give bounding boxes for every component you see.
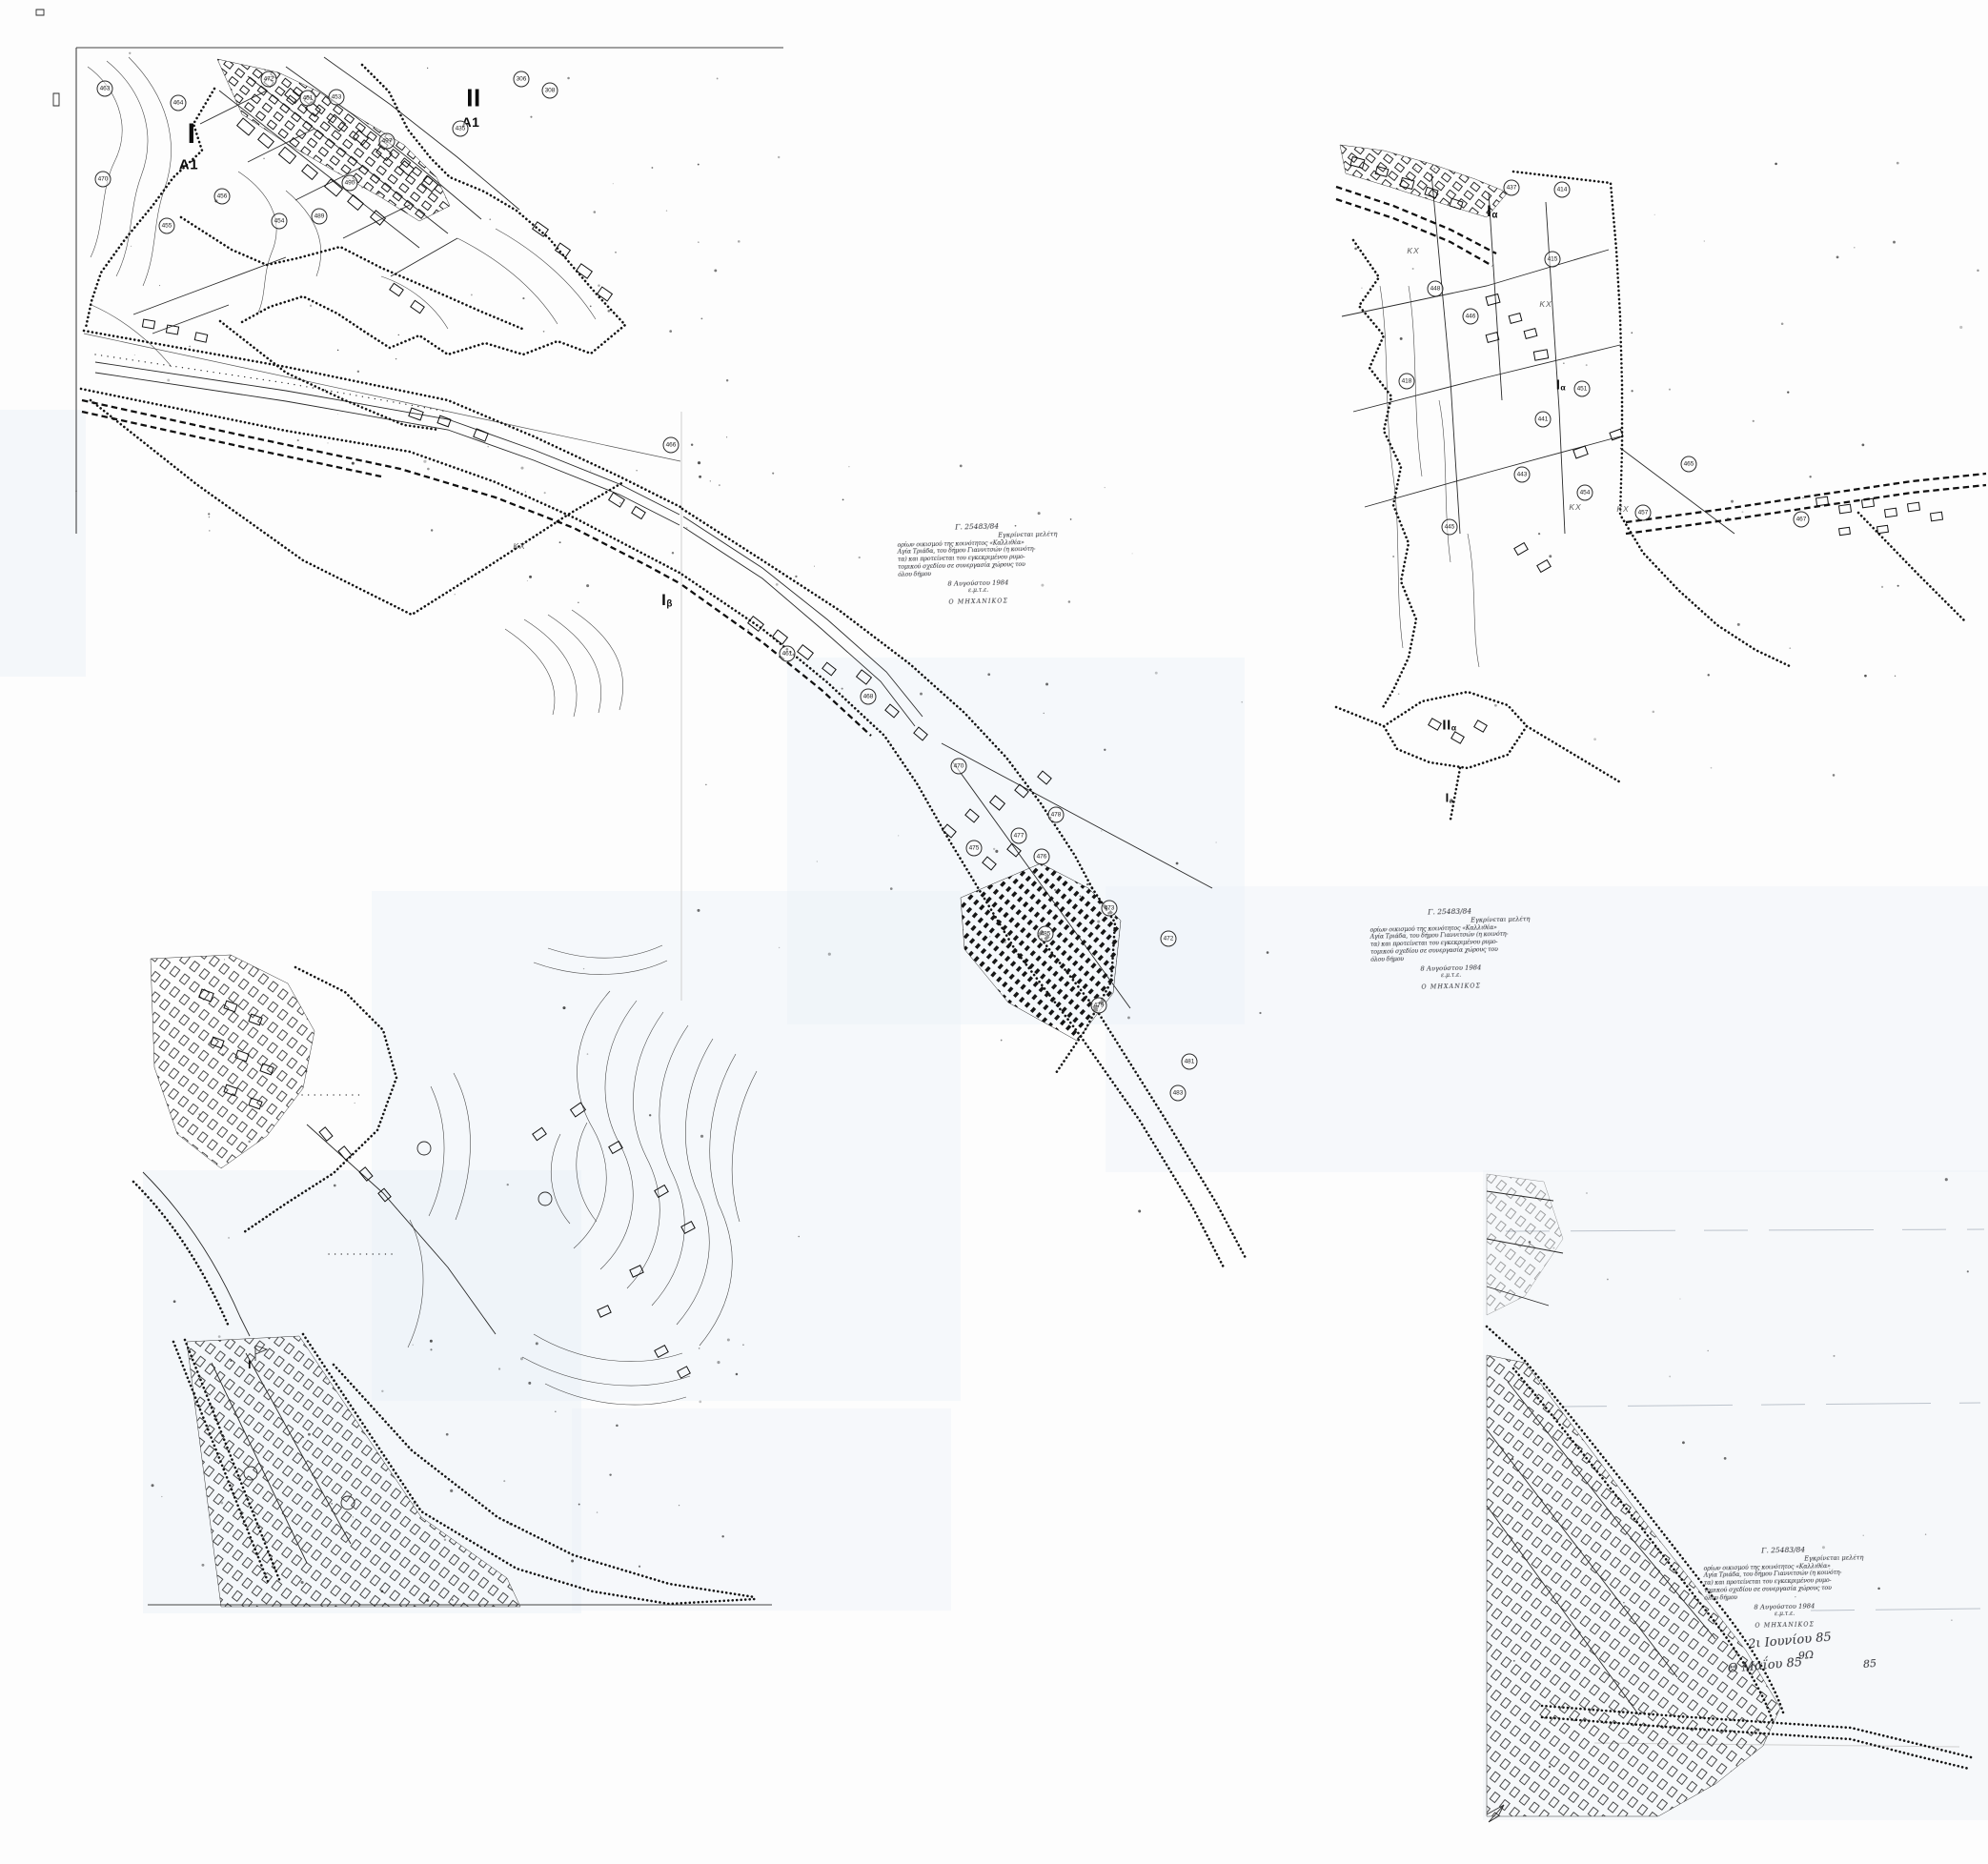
zone-label: Ia	[1446, 790, 1454, 804]
area-label-kx: KX	[1569, 502, 1581, 512]
parcel-number-badge: 481	[1182, 1054, 1198, 1070]
parcel-number-badge: 446	[1463, 309, 1479, 325]
handwritten-date-note: 85	[1862, 1657, 1876, 1671]
parcel-number-badge: 415	[1545, 252, 1561, 268]
parcel-number-badge: 478	[1048, 807, 1065, 823]
parcel-number-badge: 435	[453, 121, 469, 137]
zone-label: II	[466, 84, 480, 113]
parcel-number-badge: 470	[95, 172, 112, 188]
parcel-number-badge: 456	[214, 189, 231, 205]
parcel-number-badge: 477	[1011, 828, 1027, 844]
area-label-kx: KX	[513, 541, 525, 551]
parcel-number-badge: 451	[300, 91, 316, 107]
area-label-kx: KX	[1539, 299, 1552, 309]
parcel-number-badge: 468	[861, 689, 877, 705]
zone-label: I	[248, 1358, 252, 1371]
parcel-number-badge: 451	[1574, 381, 1591, 397]
parcel-number-badge: 476	[1034, 849, 1050, 865]
parcel-number-badge: 453	[329, 90, 345, 106]
parcel-number-badge: 479	[1091, 998, 1107, 1014]
zone-label: Iα	[1556, 377, 1567, 394]
parcel-number-badge: 483	[1170, 1085, 1187, 1102]
parcel-number-badge: 454	[1577, 485, 1593, 501]
parcel-number-badge: 472	[261, 71, 277, 88]
approval-annotation: Γ. 25483/84Εγκρίνεται μελέτηορίων οικισμ…	[1369, 905, 1532, 992]
parcel-number-badge: 306	[514, 71, 530, 88]
parcel-number-badge: 489	[312, 209, 328, 225]
zone-label: A1	[179, 157, 198, 173]
parcel-number-badge: 457	[1635, 505, 1652, 521]
parcel-number-badge: 470	[951, 759, 967, 775]
parcel-number-badge: 441	[1535, 412, 1552, 428]
area-label-kx: KX	[1616, 504, 1629, 514]
parcel-number-badge: 463	[97, 81, 113, 97]
approval-annotation: Γ. 25483/84Εγκρίνεται μελέτηορίων οικισμ…	[897, 520, 1059, 607]
parcel-number-badge: 437	[1504, 180, 1520, 196]
parcel-number-badge: 445	[1442, 519, 1458, 536]
parcel-number-badge: 467	[1794, 512, 1810, 528]
scanned-cadastral-map: IA1IIA1IβIαIαIIαIaIKXKXKXKXKX46346447245…	[0, 0, 1988, 1864]
parcel-number-badge: 464	[171, 95, 187, 111]
zone-label: IIα	[1442, 718, 1456, 734]
area-label-kx: KX	[1407, 246, 1419, 255]
parcel-number-badge: 461	[780, 646, 796, 662]
approval-annotation: Γ. 25483/84Εγκρίνεται μελέτηορίων οικισμ…	[1703, 1544, 1865, 1631]
zone-label: Iβ	[661, 591, 673, 610]
parcel-number-badge: 473	[1102, 901, 1118, 917]
zone-label: Iα	[1487, 202, 1498, 221]
parcel-number-badge: 475	[966, 841, 983, 857]
parcel-number-badge: 454	[272, 213, 288, 230]
parcel-number-badge: 490	[342, 175, 358, 192]
parcel-number-badge: 497	[379, 133, 396, 150]
parcel-number-badge: 448	[1428, 281, 1444, 297]
parcel-number-badge: 472	[1161, 931, 1177, 947]
zone-label: I	[188, 118, 196, 151]
parcel-number-badge: 466	[663, 437, 680, 454]
parcel-number-badge: 455	[159, 218, 175, 234]
parcel-number-badge: 485	[1038, 926, 1054, 942]
parcel-number-badge: 443	[1514, 467, 1531, 483]
parcel-number-badge: 308	[542, 83, 558, 99]
parcel-number-badge: 418	[1399, 374, 1415, 390]
parcel-number-badge: 414	[1554, 182, 1571, 198]
parcel-number-badge: 465	[1681, 456, 1697, 473]
map-linework	[0, 0, 1988, 1864]
